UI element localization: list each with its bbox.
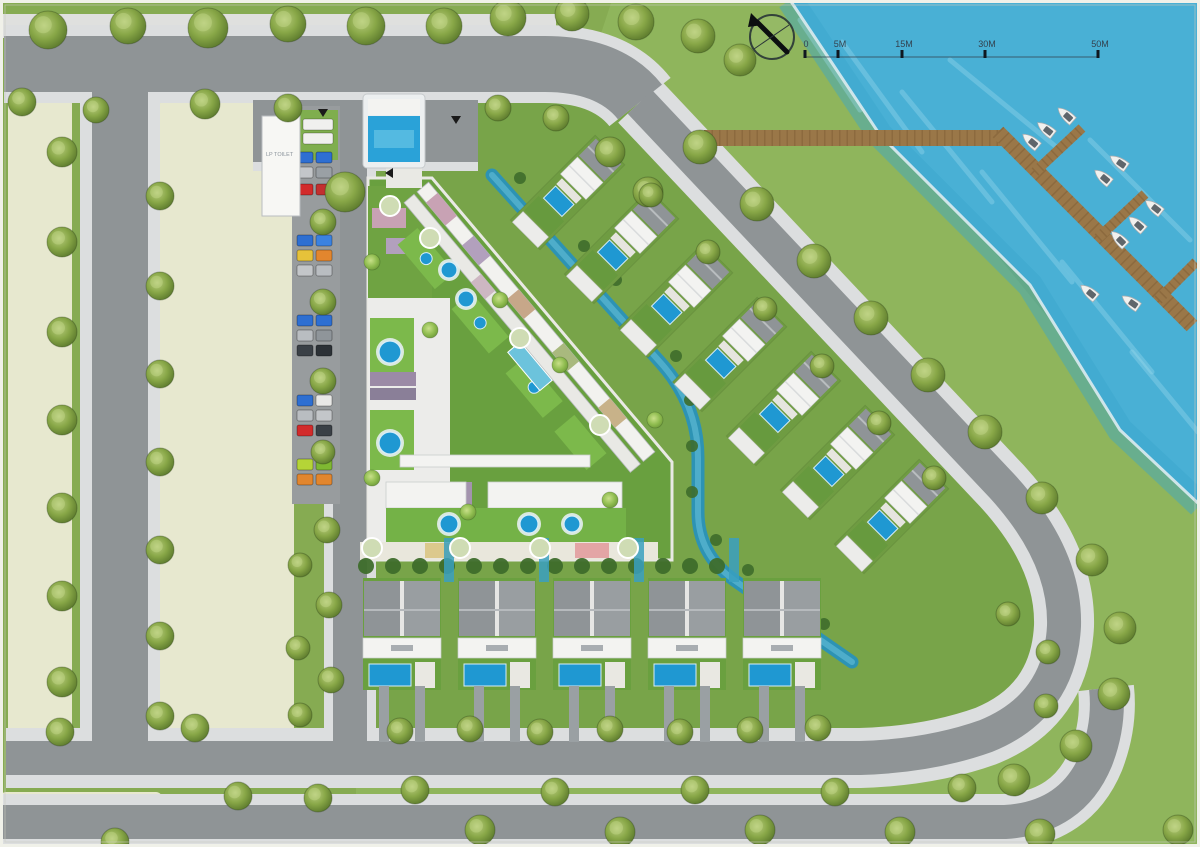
tree-highlight	[52, 497, 66, 511]
townhouse-eave	[649, 609, 725, 611]
hedge-bush	[493, 558, 509, 574]
low-block-roof	[488, 482, 622, 508]
parked-van	[303, 119, 333, 130]
tree-highlight	[1081, 548, 1095, 562]
scale-label-30m: 30M	[978, 39, 996, 49]
garden-strip	[386, 508, 626, 542]
townhouse-ridge	[590, 581, 594, 636]
tree-highlight	[1168, 819, 1182, 833]
round-pool	[564, 516, 580, 532]
tree-highlight	[952, 778, 965, 791]
guard-building	[262, 116, 300, 216]
parked-car	[316, 250, 332, 261]
tree-highlight	[1031, 486, 1045, 500]
planter-tree	[510, 328, 530, 348]
tree-highlight	[1040, 643, 1051, 654]
parked-car	[297, 330, 313, 341]
townhouse-roof-right	[688, 581, 725, 636]
hedge-bush	[412, 558, 428, 574]
parked-car	[316, 425, 332, 436]
tree-highlight	[688, 135, 703, 150]
planter-tree	[530, 538, 550, 558]
tree-highlight	[50, 722, 63, 735]
site-plan-canvas: 0 5M 15M 30M 50M LP TOILET	[0, 0, 1200, 847]
townhouse-eave	[554, 609, 630, 611]
palm-tree	[492, 292, 508, 308]
walk-patch	[575, 543, 609, 558]
roof-garden-patch	[370, 388, 416, 400]
townhouse-deck	[415, 662, 435, 688]
parked-car	[316, 410, 332, 421]
townhouse-roof-left	[364, 581, 401, 636]
scale-tick	[901, 50, 904, 58]
tree-highlight	[292, 706, 303, 717]
water-feature-strip	[729, 538, 739, 582]
parked-car	[316, 315, 332, 326]
tree-highlight	[52, 409, 66, 423]
townhouse-eave	[459, 609, 535, 611]
tree-highlight	[185, 718, 198, 731]
palm-tree	[552, 357, 568, 373]
tree-highlight	[814, 357, 825, 368]
tree-highlight	[461, 720, 473, 732]
parked-car	[297, 235, 313, 246]
entrance-canopy	[368, 99, 420, 115]
scale-tick	[1097, 50, 1100, 58]
townhouse-ridge	[685, 581, 689, 636]
tree-highlight	[278, 98, 291, 111]
hedge-bush	[466, 558, 482, 574]
tree-highlight	[973, 420, 988, 435]
tree-highlight	[194, 13, 212, 31]
tree-highlight	[685, 780, 698, 793]
tree-highlight	[729, 48, 743, 62]
tree-highlight	[150, 186, 163, 199]
tree-highlight	[150, 540, 163, 553]
hedge-bush	[520, 558, 536, 574]
entrance-pool-highlight	[374, 130, 414, 148]
tree-highlight	[700, 243, 711, 254]
tree-highlight	[871, 414, 882, 425]
planter-tree	[362, 538, 382, 558]
hedge-bush	[574, 558, 590, 574]
parked-car	[316, 235, 332, 246]
tree-highlight	[290, 639, 301, 650]
townhouse-roof-left	[459, 581, 496, 636]
tree-highlight	[315, 443, 326, 454]
hedge-bush	[655, 558, 671, 574]
townhouse-roof-right	[593, 581, 630, 636]
hedge-bush	[358, 558, 374, 574]
tree-highlight	[150, 364, 163, 377]
townhouse-roof-left	[744, 581, 781, 636]
parked-car	[297, 250, 313, 261]
townhouse-label-plate	[771, 645, 793, 651]
scale-label-0: 0	[803, 39, 808, 49]
tree-highlight	[750, 819, 764, 833]
round-pool	[440, 515, 458, 533]
parked-car	[316, 474, 332, 485]
tree-highlight	[405, 780, 418, 793]
townhouse-ridge	[780, 581, 784, 636]
tree-highlight	[531, 723, 543, 735]
tree-highlight	[560, 2, 575, 17]
tree-highlight	[314, 213, 326, 225]
planter-tree	[618, 538, 638, 558]
tree-highlight	[150, 276, 163, 289]
palm-tree	[422, 322, 438, 338]
tree-highlight	[809, 719, 821, 731]
townhouse-roof-right	[498, 581, 535, 636]
scale-label-15m: 15M	[895, 39, 913, 49]
planter-tree	[420, 228, 440, 248]
tree-highlight	[741, 721, 753, 733]
tree-highlight	[52, 671, 66, 685]
townhouse-roof-right	[783, 581, 820, 636]
parked-car	[316, 330, 332, 341]
canal-bush	[686, 486, 698, 498]
driveway	[510, 686, 520, 742]
townhouse-pool	[369, 664, 411, 686]
parked-car	[297, 315, 313, 326]
townhouse-roof-right	[403, 581, 440, 636]
tree-highlight	[757, 300, 768, 311]
tree-highlight	[195, 93, 209, 107]
tree-highlight	[314, 372, 326, 384]
parked-van	[303, 133, 333, 144]
palm-tree	[602, 492, 618, 508]
round-pool	[379, 432, 401, 454]
tree-highlight	[1038, 697, 1049, 708]
tree-highlight	[545, 782, 558, 795]
tree-highlight	[802, 249, 817, 264]
tree-highlight	[916, 363, 931, 378]
parked-car	[316, 152, 332, 163]
tree-highlight	[623, 9, 639, 25]
planter-tree	[380, 196, 400, 216]
tree-highlight	[825, 782, 838, 795]
driveway	[700, 686, 710, 742]
guard-building-label: LP TOILET	[266, 152, 294, 158]
hedge-bush	[601, 558, 617, 574]
townhouse-ridge	[400, 581, 404, 636]
tree-highlight	[601, 720, 613, 732]
tree-highlight	[431, 13, 447, 29]
tree-highlight	[318, 521, 330, 533]
parked-car	[316, 265, 332, 276]
tree-highlight	[320, 596, 332, 608]
tree-highlight	[52, 585, 66, 599]
tree-highlight	[1000, 605, 1011, 616]
tree-highlight	[150, 706, 163, 719]
tree-highlight	[470, 819, 484, 833]
planter-tree	[450, 538, 470, 558]
tree-highlight	[52, 141, 66, 155]
tree-highlight	[1003, 768, 1017, 782]
palm-tree	[647, 412, 663, 428]
tree-highlight	[1030, 823, 1044, 837]
round-pool	[458, 291, 474, 307]
palm-tree	[364, 470, 380, 486]
tree-highlight	[52, 321, 66, 335]
tree-highlight	[926, 469, 937, 480]
townhouse-label-plate	[676, 645, 698, 651]
hedge-bush	[385, 558, 401, 574]
tree-highlight	[600, 141, 614, 155]
tree-highlight	[610, 821, 624, 835]
round-pool	[441, 262, 457, 278]
hedge-bush	[709, 558, 725, 574]
scale-label-5m: 5M	[834, 39, 847, 49]
townhouse-eave	[744, 609, 820, 611]
parked-car	[316, 167, 332, 178]
round-pool	[520, 515, 538, 533]
tree-highlight	[643, 186, 654, 197]
parked-car	[316, 345, 332, 356]
parked-car	[297, 395, 313, 406]
parked-car	[316, 395, 332, 406]
low-block-roof	[400, 455, 590, 467]
townhouse-deck	[605, 662, 625, 688]
parked-car	[297, 459, 313, 470]
round-pool	[379, 341, 401, 363]
site-plan: 0 5M 15M 30M 50M LP TOILET	[0, 0, 1200, 847]
tree-highlight	[228, 786, 241, 799]
tree-highlight	[495, 5, 511, 21]
canal-bush	[670, 350, 682, 362]
boardwalk	[704, 130, 1002, 146]
tree-highlight	[52, 231, 66, 245]
tree-highlight	[859, 306, 874, 321]
canal-bush	[514, 172, 526, 184]
townhouse-eave	[364, 609, 440, 611]
townhouse-deck	[510, 662, 530, 688]
townhouse-pool	[654, 664, 696, 686]
townhouse-label-plate	[486, 645, 508, 651]
tree-highlight	[308, 788, 321, 801]
townhouse-label-plate	[581, 645, 603, 651]
hedge-bush	[547, 558, 563, 574]
townhouse-roof-left	[554, 581, 591, 636]
roof-garden-patch	[370, 372, 416, 386]
canal-bush	[686, 440, 698, 452]
planter-tree	[590, 415, 610, 435]
tree-highlight	[671, 723, 683, 735]
palm-tree	[460, 504, 476, 520]
scale-label-50m: 50M	[1091, 39, 1109, 49]
tree-highlight	[489, 99, 501, 111]
townhouse-deck	[795, 662, 815, 688]
tree-highlight	[890, 821, 904, 835]
tree-highlight	[1103, 682, 1117, 696]
tree-highlight	[35, 16, 52, 33]
tree-highlight	[314, 293, 326, 305]
tree-highlight	[353, 12, 370, 29]
tree-highlight	[150, 452, 163, 465]
townhouse-roof-left	[649, 581, 686, 636]
canal-bush	[710, 534, 722, 546]
palm-tree	[364, 254, 380, 270]
townhouse-label-plate	[391, 645, 413, 651]
parked-car	[297, 474, 313, 485]
north-arrow-icon	[748, 13, 794, 59]
tree-highlight	[745, 192, 760, 207]
tree-highlight	[322, 671, 334, 683]
parked-car	[297, 410, 313, 421]
parked-car	[297, 265, 313, 276]
tree-highlight	[12, 92, 25, 105]
low-block-roof	[386, 482, 466, 508]
tree-highlight	[275, 11, 291, 27]
scale-tick	[837, 50, 840, 58]
parked-car	[297, 425, 313, 436]
tree-highlight	[391, 722, 403, 734]
driveway	[795, 686, 805, 742]
tree-highlight	[547, 109, 559, 121]
scale-tick	[804, 50, 807, 58]
tree-highlight	[1065, 734, 1079, 748]
townhouse-deck	[700, 662, 720, 688]
tree-highlight	[150, 626, 163, 639]
townhouse-pool	[749, 664, 791, 686]
parked-car	[297, 345, 313, 356]
canal-bush	[742, 564, 754, 576]
tree-highlight	[1109, 616, 1123, 630]
driveway	[415, 686, 425, 742]
driveway	[569, 686, 579, 742]
townhouse-pool	[559, 664, 601, 686]
tree-highlight	[331, 177, 349, 195]
townhouse-pool	[464, 664, 506, 686]
promenade-walk	[360, 542, 658, 560]
scale-tick	[984, 50, 987, 58]
tree-highlight	[115, 13, 131, 29]
tree-highlight	[686, 24, 701, 39]
townhouse-ridge	[495, 581, 499, 636]
tree-highlight	[292, 556, 303, 567]
hedge-bush	[682, 558, 698, 574]
tree-highlight	[87, 101, 99, 113]
